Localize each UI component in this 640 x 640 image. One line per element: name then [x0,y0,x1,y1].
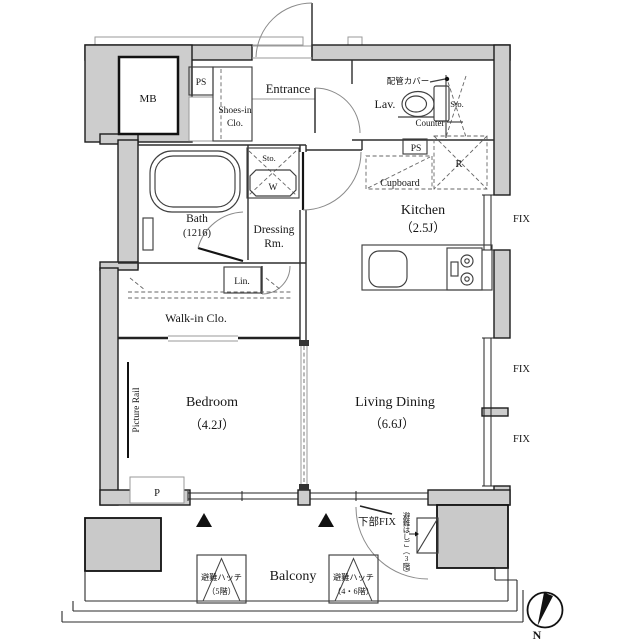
evac-ladder-diagonal [417,518,438,553]
wall-left-low [100,268,118,505]
living-dining-size: （6.6J） [369,417,415,431]
bath-size: (1216) [183,228,211,239]
counter-label: Counter [416,118,445,128]
railing-line-3 [62,590,523,622]
fix-label-2: FIX [513,364,530,375]
lower-fix-label: 下部FIX [358,515,396,528]
hanger-marks [130,278,281,290]
kitchen-sink [369,251,407,287]
wall-right-2 [494,250,510,338]
bathtub [150,151,240,212]
bath-counter [143,218,153,250]
window-living [310,491,428,501]
linen-door-swing [262,266,290,294]
balcony-structure [62,505,523,622]
grill [451,262,458,276]
hanger-rail [128,292,292,298]
toilet-bowl [402,92,434,117]
walkin-opening [168,336,238,341]
compass-north-label: N [533,628,542,640]
bathtub-inner [155,156,235,207]
partition-post [299,484,309,490]
hatch-5f-label-2: （5階） [207,586,236,596]
burner [461,273,473,285]
shoes-closet-label-2: Clo. [227,119,243,129]
fix-label-3: FIX [513,434,530,445]
parapet-line [348,37,362,45]
wall-bottom-pier [298,490,310,505]
hatch-5f-label-1: 避難ハッチ [201,572,242,582]
balcony-label: Balcony [270,569,317,584]
kitchen-label: Kitchen [401,203,445,218]
walkin-label: Walk-in Clo. [165,311,227,325]
ps-kitchen-label: PS [411,144,422,154]
toilet-bowl-inner [406,96,427,112]
ps-top-label: PS [196,78,207,88]
hatch-46f-label-2: （4・6階） [333,586,374,596]
dressing-label-1: Dressing [254,224,295,236]
wall-left-mid [118,140,138,268]
window-fix-1 [482,195,496,250]
fix-label-1: FIX [513,214,530,225]
kitchen-counter [362,245,492,290]
pole-label: P [154,488,160,499]
wall-top-right [312,45,510,60]
bedroom-label: Bedroom [186,395,238,410]
balcony-edge-step [495,568,517,580]
wall-window-divider [482,408,508,416]
washer-label: W [269,183,278,193]
living-door-swing [303,152,361,210]
burner-center [465,259,469,263]
dressing-label-2: Rm. [264,238,284,250]
compass [528,593,563,628]
lower-fix-pointer [360,506,392,514]
wall-bottom-right [428,490,510,505]
wall-corridor-upper [300,145,306,152]
entrance-label: Entrance [266,82,311,96]
windows [188,195,496,501]
window-bedroom [188,491,298,501]
refrigerator-label: R [455,159,462,170]
floor-plan-canvas: MB [0,0,640,640]
direction-triangle [196,513,212,527]
evac-ladder-label: 避難はしご（3階） [399,512,413,588]
balcony-pillar-left [85,518,161,571]
partition-post [299,340,309,346]
hall-door-swing [315,88,360,133]
kitchen-size: （2.5J） [400,221,446,235]
cupboard-label: Cupboard [380,178,419,189]
floor-plan-drawing: MB [0,0,640,640]
direction-triangle [318,513,334,527]
pipe-cover-dot [445,77,449,81]
bedroom-size: （4.2J） [189,418,235,432]
living-dining-label: Living Dining [355,395,435,410]
dressing-storage-label: Sto. [262,153,275,163]
stove [447,248,482,290]
toilet-tank [434,86,449,121]
railing-line-2 [73,580,517,611]
entrance-cabinet [189,97,213,141]
bath-label: Bath [186,213,208,225]
burner-center [465,277,469,281]
balcony-pillar-right [437,505,508,568]
front-door-swing [256,3,312,57]
burner [461,255,473,267]
hatch-46f-label-1: 避難ハッチ [333,572,374,582]
lavatory-label: Lav. [375,97,396,111]
parapet-line [95,37,303,45]
shoes-closet [213,67,252,141]
bath-door-leaf [198,248,243,261]
pipe-cover-label: 配管カバー [387,76,430,86]
pipe-cover-leader [430,79,445,82]
lav-storage-label: Sto. [450,99,463,109]
wall-corridor-lower [300,210,306,340]
wall-kitchen-hall [306,140,362,150]
wall-right-1 [494,45,510,195]
picture-rail-label: Picture Rail [132,387,142,432]
meter-box-label: MB [139,93,156,105]
entrance-fixtures: PS Shoes-in Clo. [189,67,252,141]
linen-label: Lin. [234,277,250,287]
shoes-closet-label-1: Shoes-in [218,106,252,116]
